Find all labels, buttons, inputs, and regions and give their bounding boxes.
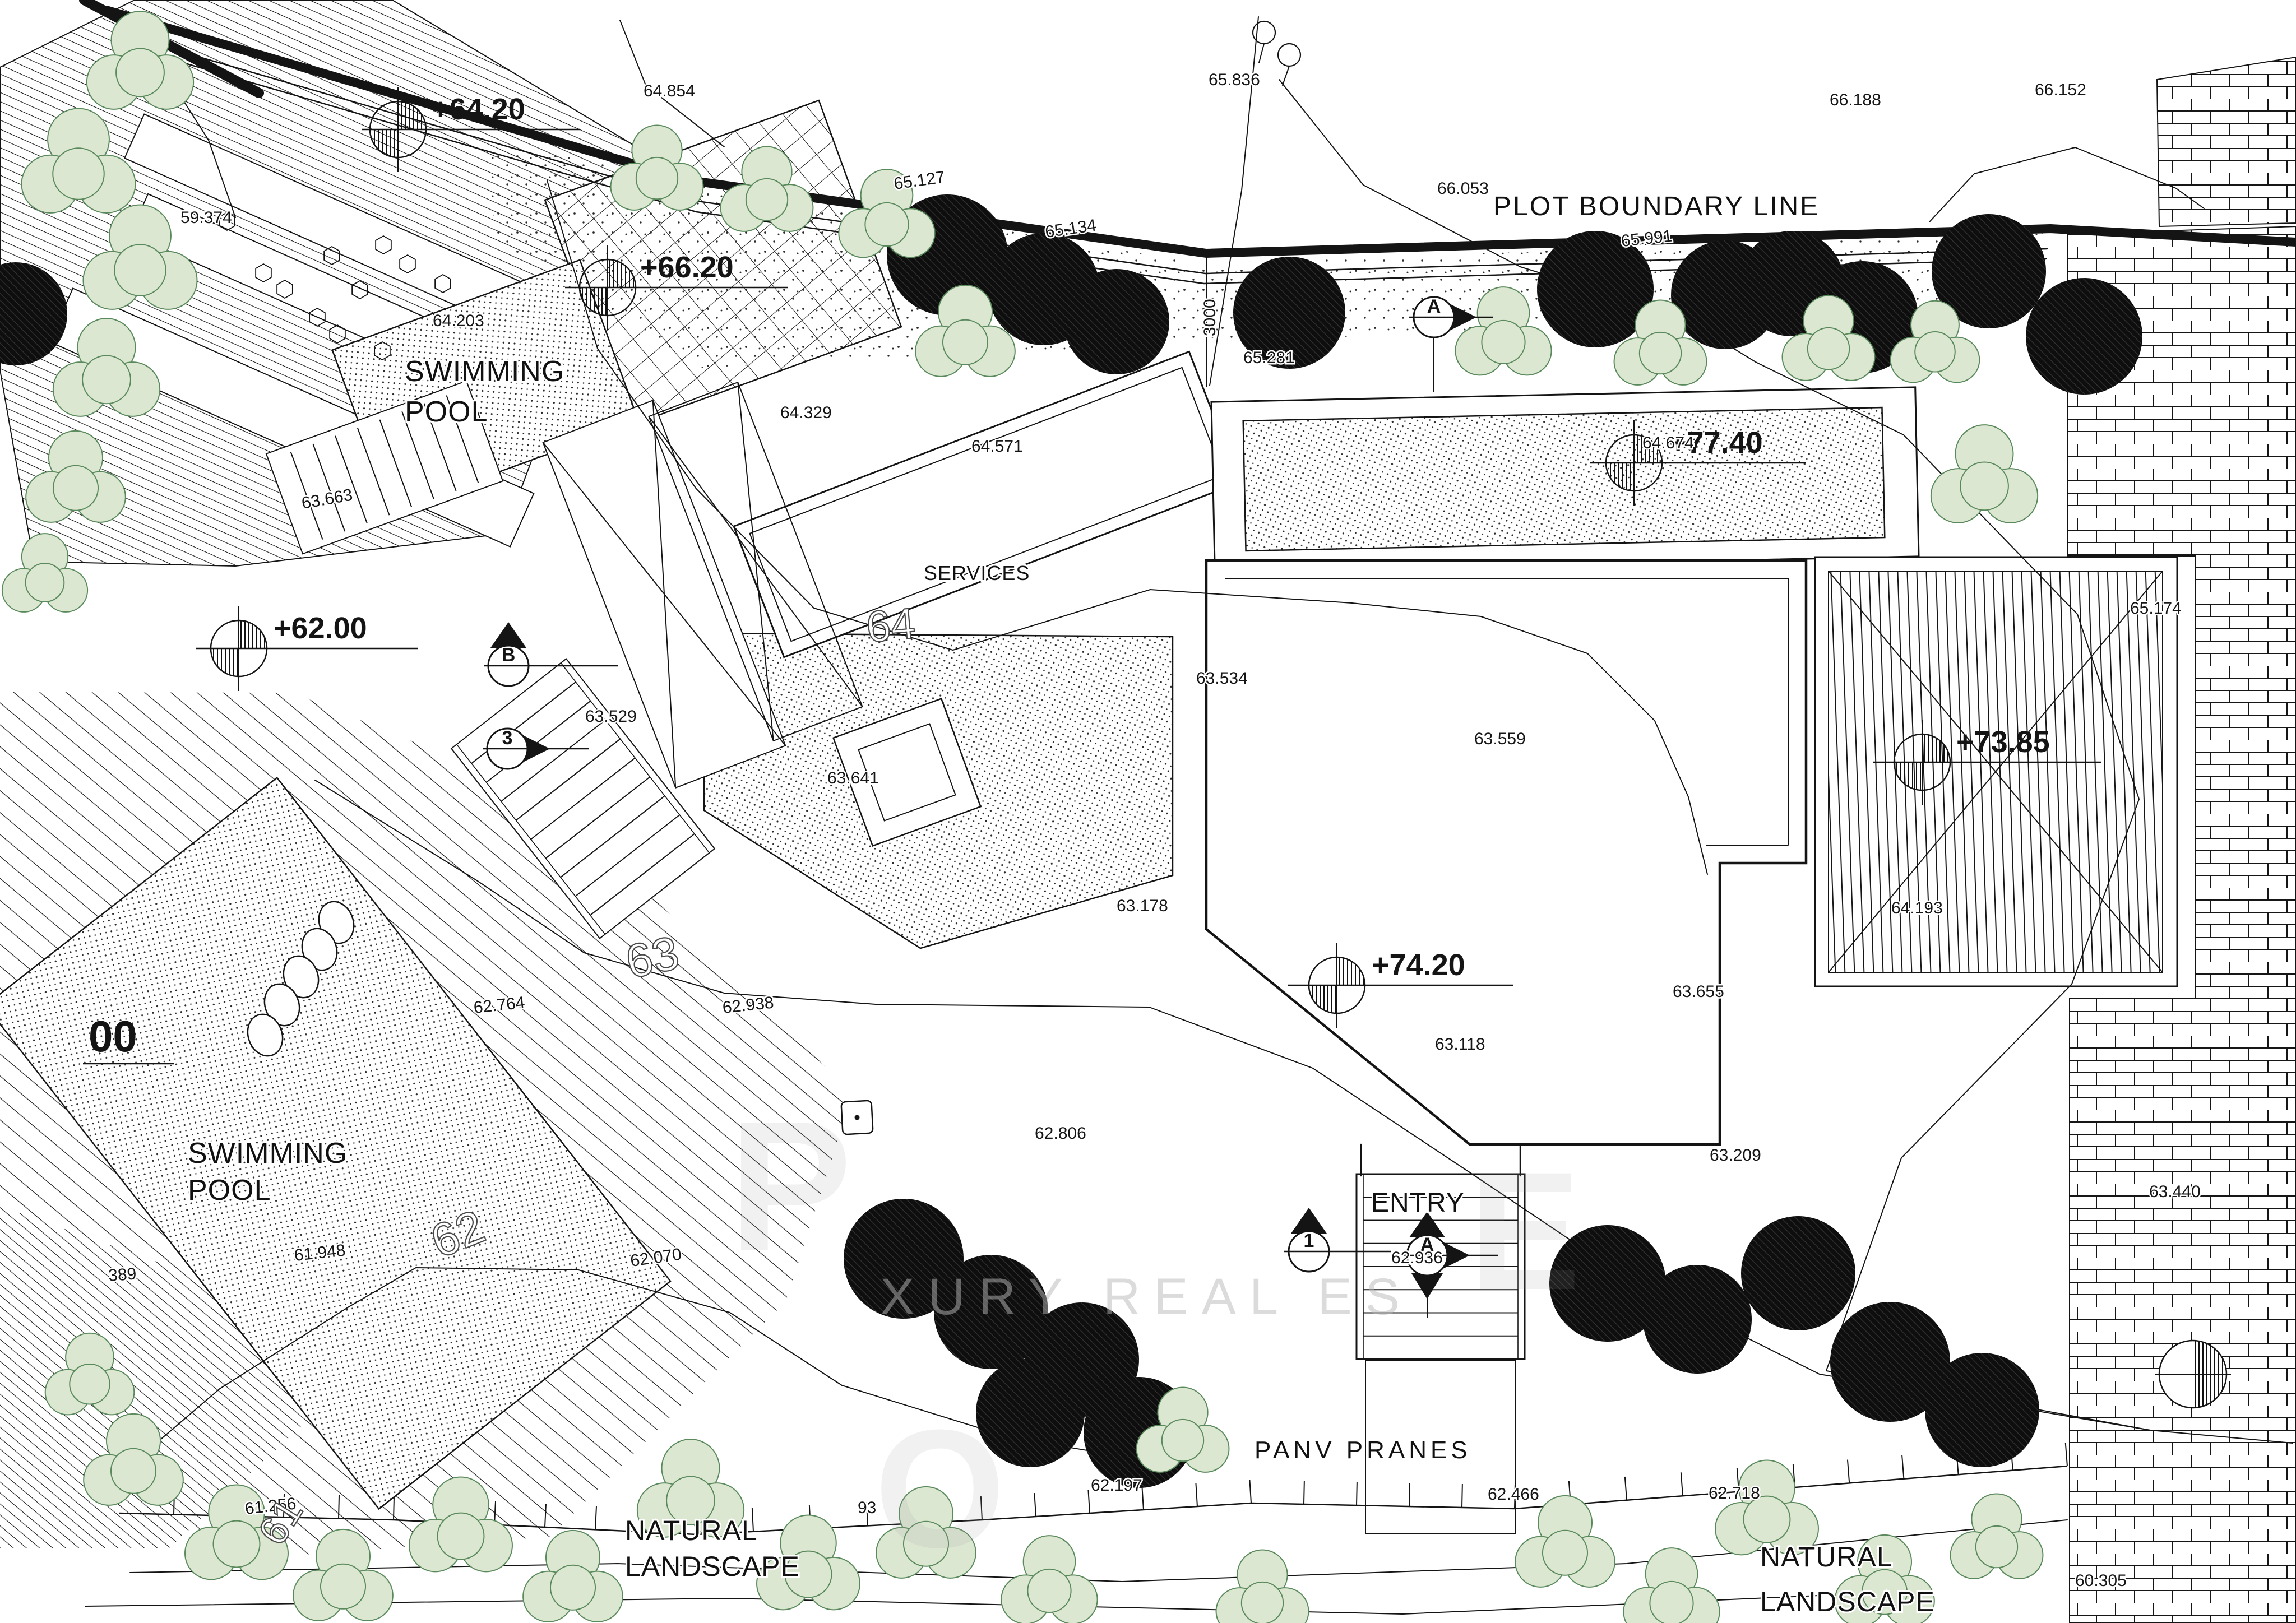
- survey-symbol: [1278, 44, 1300, 66]
- spot-elevation: 63.655: [1673, 982, 1724, 1001]
- tree-light: [1931, 425, 2038, 523]
- tree-light-lobe: [321, 1564, 365, 1609]
- spot-elevation: 63.209: [1710, 1146, 1761, 1165]
- fence-tick: [339, 1495, 339, 1519]
- tree-dark-hatch: [2026, 278, 2142, 395]
- tree-light-lobe: [1960, 462, 2008, 510]
- tree-light-lobe: [1915, 332, 1955, 372]
- spot-elevation: 64.329: [780, 404, 832, 422]
- fence-tick: [595, 1506, 596, 1529]
- spot-elevation: 65.127: [892, 168, 946, 193]
- spot-elevation: 63.118: [1435, 1035, 1485, 1054]
- tree-light: [1216, 1550, 1309, 1623]
- spot-elevation: 63.440: [2149, 1183, 2201, 1201]
- tree-light: [1951, 1494, 2043, 1578]
- tree-light-lobe: [111, 1449, 156, 1494]
- area-label-line: SWIMMING: [188, 1137, 348, 1170]
- spot-elevation: 65.836: [1209, 71, 1260, 89]
- survey-symbol: [1253, 21, 1275, 44]
- spot-elevation: 93: [858, 1499, 876, 1517]
- tree-light-lobe: [438, 1513, 484, 1560]
- elevation-marker-value: 00: [89, 1012, 137, 1061]
- entry-label: ENTRY: [1371, 1188, 1465, 1218]
- main-house: [1206, 560, 1806, 1144]
- tree-dark-hatch: [1064, 269, 1169, 374]
- fence-tick: [394, 1496, 394, 1520]
- tree-light: [523, 1531, 623, 1622]
- spot-elevation: 389: [108, 1265, 137, 1285]
- contour-label: 64: [864, 599, 917, 652]
- spot-elevation: 3000: [1201, 299, 1219, 336]
- tree-light-lobe: [1027, 1569, 1071, 1612]
- fence-tick: [1625, 1477, 1627, 1500]
- tree-light-lobe: [82, 355, 131, 404]
- area-label-line: SERVICES: [924, 562, 1030, 585]
- tree-light: [1623, 1548, 1719, 1623]
- fence-tick: [1409, 1483, 1410, 1506]
- spot-elevation: 63.529: [585, 707, 637, 726]
- tree-light-lobe: [116, 48, 164, 96]
- tree-light-lobe: [53, 466, 98, 511]
- tree-light-lobe: [636, 157, 678, 199]
- natural-landscape-left-label: NATURALLANDSCAPE: [625, 1515, 800, 1582]
- services-building-group: [734, 351, 1239, 657]
- area-label-line: POOL: [405, 396, 488, 428]
- spot-elevation: 65.174: [2130, 599, 2182, 618]
- tree-light: [1001, 1536, 1097, 1623]
- tree-light-lobe: [1650, 1582, 1693, 1623]
- section-marker-letter: B: [502, 644, 516, 666]
- pany-pranes-label: PANV PRANES: [1255, 1436, 1471, 1464]
- spot-elevation: 63.641: [827, 769, 879, 787]
- elevation-marker: +62.00: [196, 606, 418, 691]
- spot-elevation: 66.188: [1830, 91, 1881, 109]
- site-plan-svg: POEXURY REAL ES+64.20+66.20+62.00+77.40+…: [0, 0, 2296, 1623]
- area-label-line: LANDSCAPE: [1760, 1586, 1935, 1617]
- fence-tick: [1681, 1472, 1683, 1496]
- spot-elevation: 59.374: [180, 208, 232, 227]
- spot-elevation: 62.806: [1035, 1124, 1086, 1143]
- area-label-line: POOL: [188, 1174, 271, 1207]
- tree-light-lobe: [1543, 1531, 1587, 1575]
- area-label-line: NATURAL: [625, 1515, 758, 1546]
- fence-tick: [1848, 1460, 1849, 1483]
- area-label-line: SWIMMING: [405, 355, 564, 388]
- elevation-marker-value: +64.20: [432, 92, 525, 126]
- spot-elevation: 65.281: [1243, 349, 1295, 367]
- fence-tick: [1304, 1481, 1304, 1504]
- tree-light-lobe: [114, 244, 166, 296]
- brick-corner: [2157, 57, 2296, 226]
- survey-symbol-tail-1: [1259, 44, 1264, 63]
- spot-elevation: 66.053: [1437, 179, 1489, 198]
- tree-light-lobe: [26, 563, 64, 602]
- watermark-ghost-letter: P: [729, 1082, 852, 1289]
- tree-light-lobe: [1808, 328, 1849, 369]
- section-marker-letter: A: [1427, 296, 1441, 317]
- section-marker-letter: 3: [502, 727, 513, 749]
- spot-elevation: 62.466: [1488, 1485, 1539, 1504]
- fence-tick: [1249, 1480, 1251, 1503]
- services-building: [734, 351, 1239, 657]
- drawing-root: POEXURY REAL ES+64.20+66.20+62.00+77.40+…: [0, 0, 2296, 1623]
- spot-elevation: 63.559: [1474, 730, 1526, 748]
- tree-light: [1515, 1496, 1615, 1587]
- elevation-marker-value: +66.20: [640, 251, 734, 284]
- spot-elevation: 60.305: [2075, 1571, 2127, 1590]
- tree-light: [611, 125, 703, 210]
- spot-elevation: 66.152: [2035, 81, 2086, 99]
- spot-elevation: 62.197: [1091, 1476, 1142, 1495]
- spa-box-dot: [855, 1115, 860, 1120]
- tree-light-lobe: [865, 203, 908, 246]
- tree-light-lobe: [1640, 332, 1681, 374]
- elevation-marker-value: +73.85: [1956, 725, 2050, 759]
- fence-tick: [1142, 1486, 1144, 1510]
- services-label: SERVICES: [924, 562, 1030, 585]
- survey-symbol-tail-2: [1283, 66, 1289, 85]
- spot-elevation: 64.854: [644, 82, 695, 100]
- pergola-group: [1829, 571, 2163, 972]
- tree-light-lobe: [1482, 321, 1525, 364]
- terrace-7740-inner: [1243, 407, 1885, 551]
- site-plan: POEXURY REAL ES+64.20+66.20+62.00+77.40+…: [0, 0, 2296, 1623]
- fence-tick: [1034, 1493, 1036, 1517]
- tree-light-lobe: [1162, 1420, 1203, 1461]
- contour-label: 63: [621, 926, 683, 988]
- spot-elevation: 62.718: [1709, 1484, 1760, 1503]
- spot-elevation: 62.936: [1391, 1249, 1443, 1267]
- tree-light-lobe: [1744, 1496, 1790, 1543]
- area-label-line: NATURAL: [1760, 1541, 1893, 1573]
- area-label-line: PANV PRANES: [1255, 1436, 1471, 1464]
- elevation-marker-value: +74.20: [1372, 948, 1465, 982]
- watermark-text: XURY REAL ES: [880, 1268, 1413, 1325]
- area-label-line: ENTRY: [1371, 1188, 1465, 1218]
- tree-light-lobe: [1976, 1526, 2017, 1568]
- tree-light-lobe: [943, 320, 988, 365]
- spot-elevation: 64.571: [971, 437, 1023, 456]
- area-label-line: LANDSCAPE: [625, 1551, 800, 1582]
- spot-elevation: 64.674: [1642, 434, 1694, 452]
- tree-dark-hatch: [1741, 1216, 1855, 1330]
- spot-elevation: 64.193: [1891, 899, 1943, 917]
- terrace-7740-inner-group: [1243, 407, 1885, 551]
- tree-light-lobe: [746, 179, 788, 220]
- fence-tick: [1088, 1490, 1090, 1513]
- plot-boundary-label: PLOT BOUNDARY LINE: [1493, 192, 1820, 221]
- watermark-ghost-letter: E: [1469, 1137, 1581, 1325]
- elevation-marker-value: +62.00: [274, 611, 367, 645]
- fence-tick: [1902, 1455, 1904, 1479]
- spot-elevation: 63.534: [1196, 669, 1248, 688]
- fence-tick: [2066, 1443, 2067, 1466]
- tree-dark-hatch: [1925, 1353, 2039, 1467]
- watermark-ghost-letter: O: [874, 1394, 1005, 1583]
- fence-tick: [1196, 1483, 1197, 1506]
- tree-dark-hatch: [1643, 1265, 1752, 1374]
- tree-light-lobe: [550, 1565, 595, 1610]
- fence-tick: [1357, 1482, 1357, 1505]
- fence-tick: [1462, 1484, 1462, 1508]
- tree-light-lobe: [1242, 1582, 1283, 1623]
- tree-light-lobe: [53, 148, 104, 200]
- spot-elevation: 64.203: [433, 312, 484, 330]
- section-marker-letter: 1: [1304, 1230, 1314, 1251]
- tree-light-lobe: [70, 1364, 110, 1404]
- spot-elevation: 63.178: [1117, 897, 1168, 915]
